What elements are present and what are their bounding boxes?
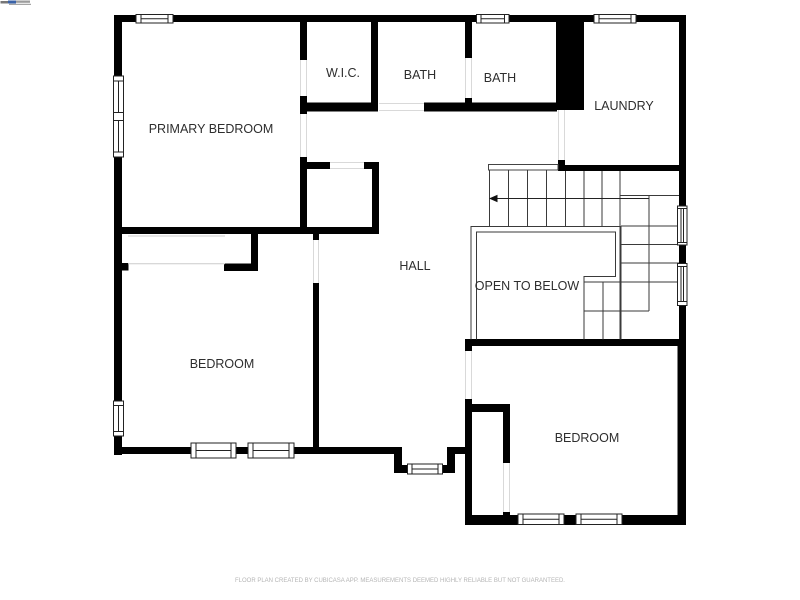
- svg-text:LAUNDRY: LAUNDRY: [594, 99, 654, 113]
- svg-text:BEDROOM: BEDROOM: [190, 357, 255, 371]
- svg-text:BATH: BATH: [484, 71, 516, 85]
- svg-text:BEDROOM: BEDROOM: [555, 431, 620, 445]
- svg-text:OPEN TO BELOW: OPEN TO BELOW: [475, 279, 580, 293]
- svg-text:FLOOR PLAN CREATED BY CUBICASA: FLOOR PLAN CREATED BY CUBICASA APP. MEAS…: [235, 578, 565, 584]
- svg-text:HALL: HALL: [399, 259, 430, 273]
- svg-text:PRIMARY BEDROOM: PRIMARY BEDROOM: [149, 122, 274, 136]
- svg-text:BATH: BATH: [404, 68, 436, 82]
- svg-text:W.I.C.: W.I.C.: [326, 66, 360, 80]
